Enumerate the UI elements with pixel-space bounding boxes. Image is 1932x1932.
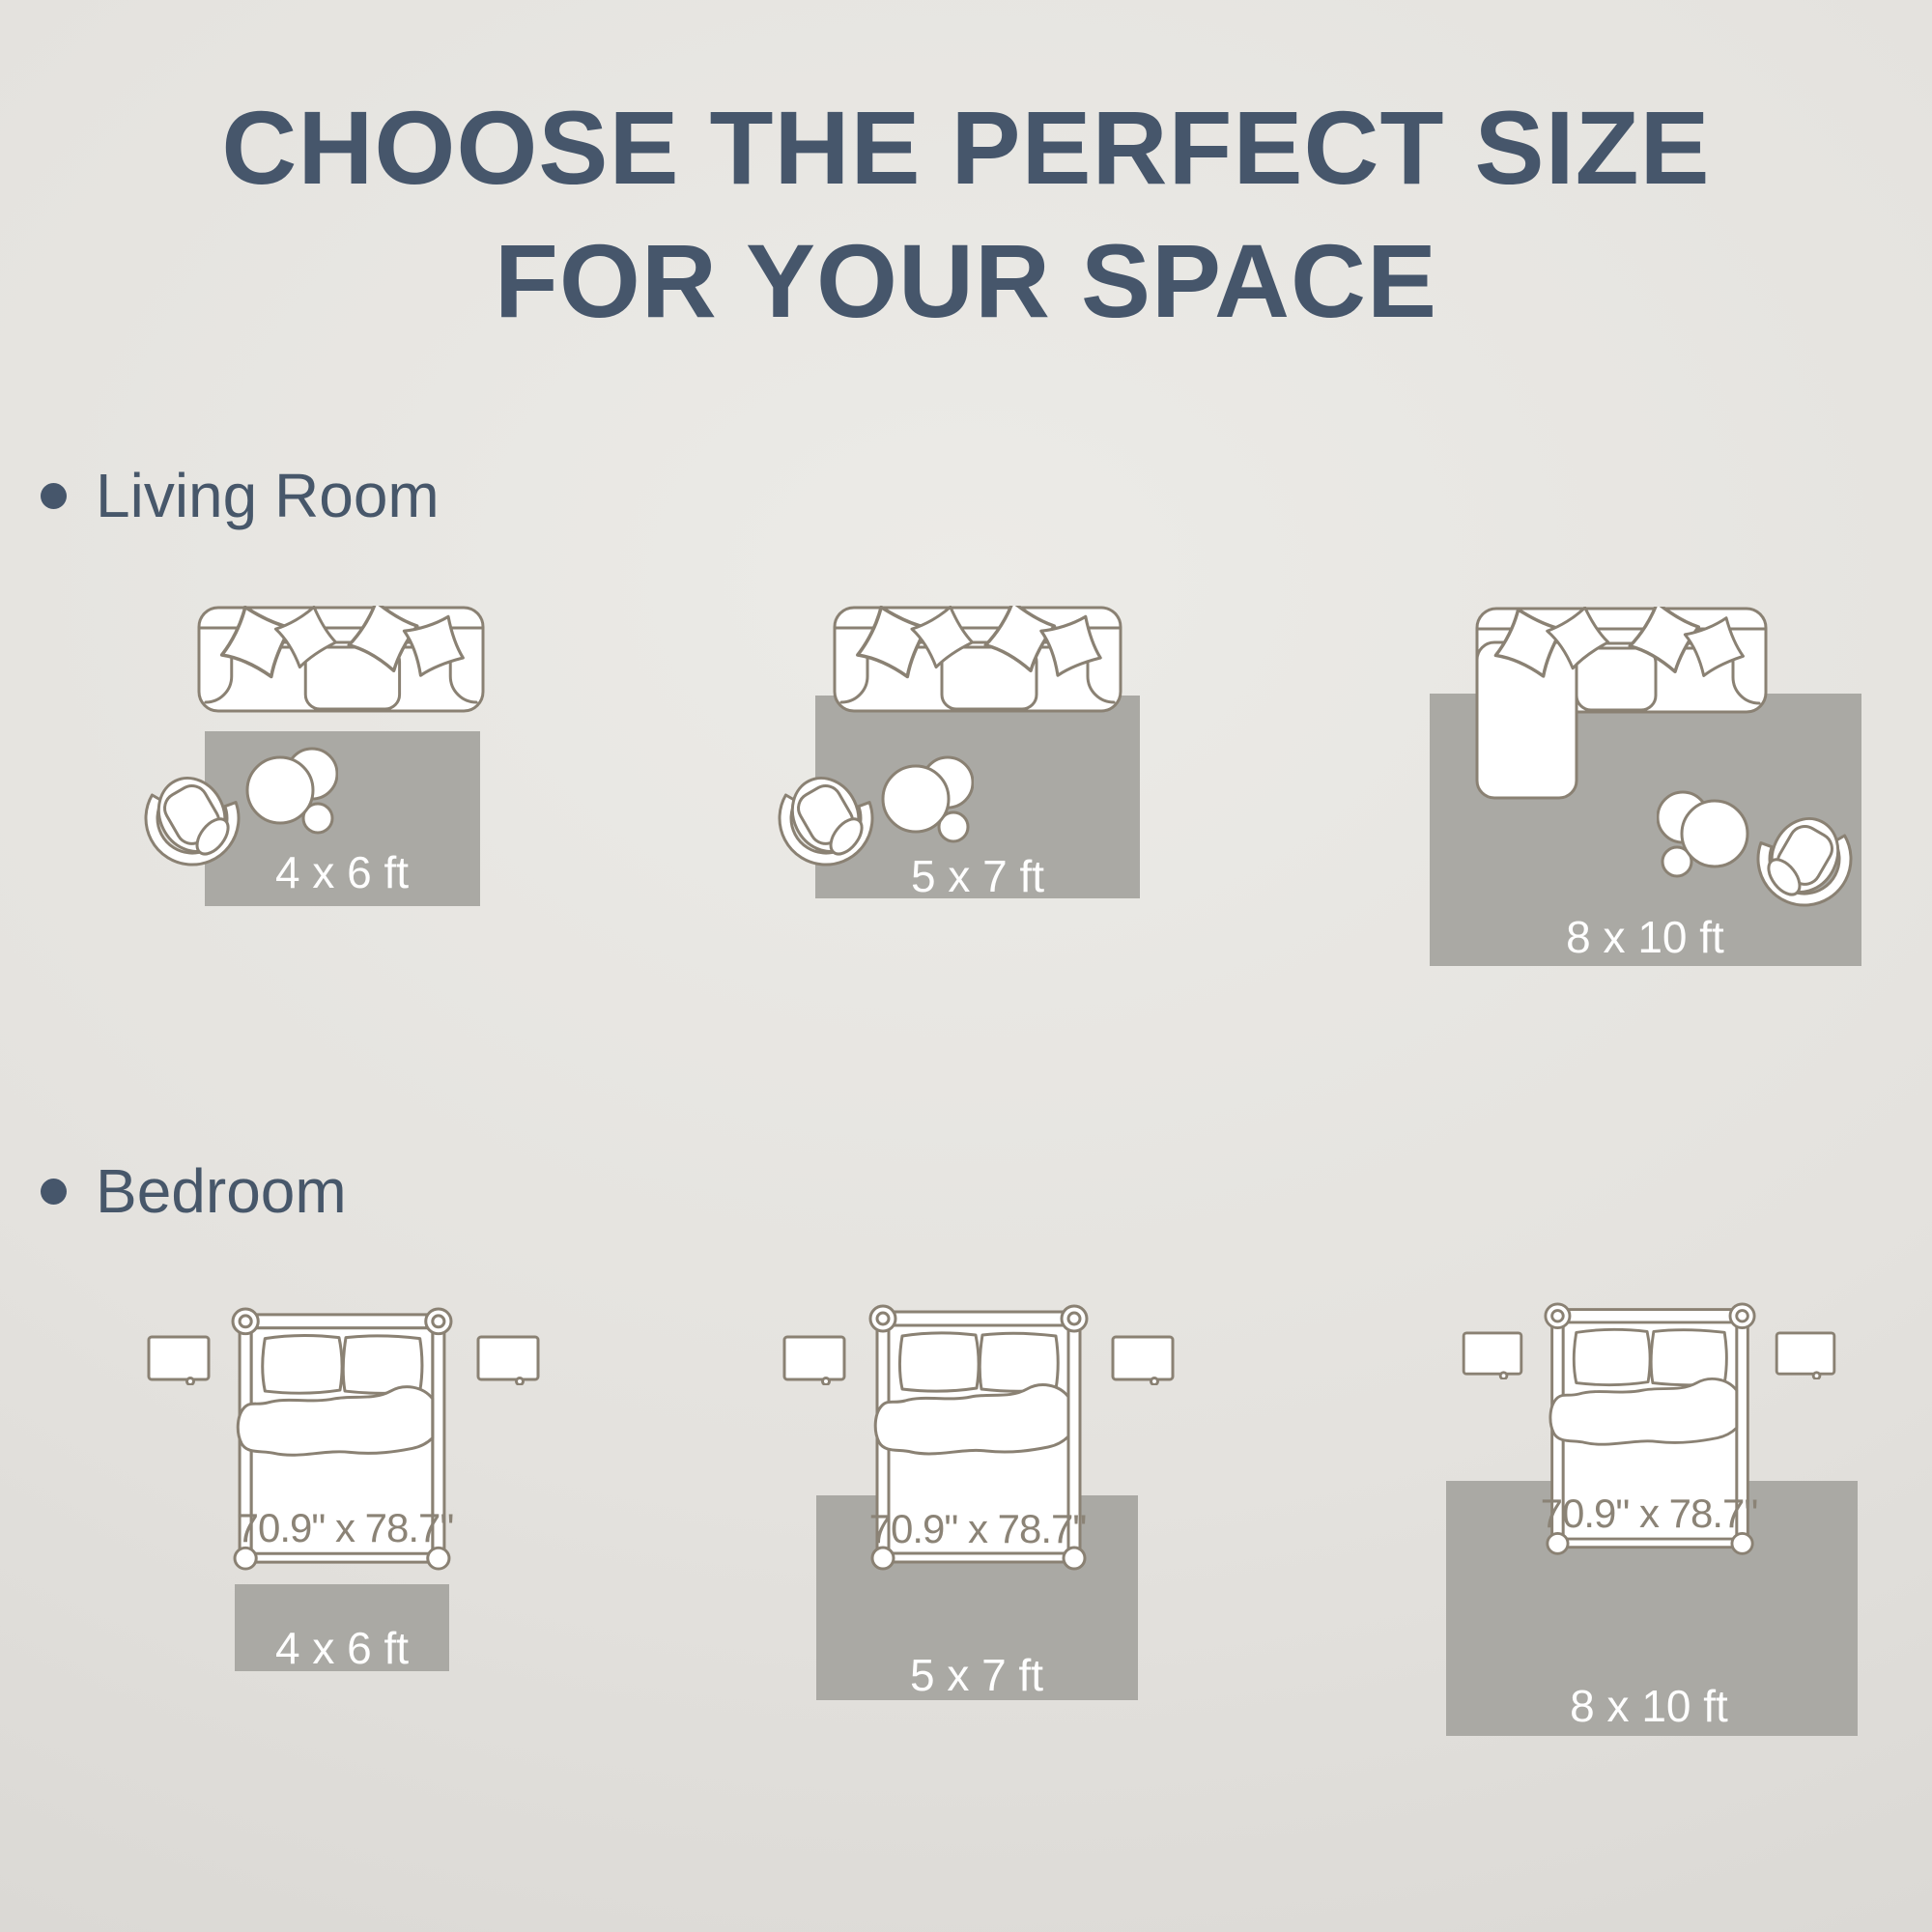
- nightstand-left-icon: [784, 1337, 844, 1385]
- page-title-line-2: FOR YOUR SPACE: [0, 214, 1932, 348]
- living-room-4x6-layout: [87, 580, 551, 985]
- nightstand-right-icon: [1776, 1333, 1834, 1379]
- rug-size-label: 5 x 7 ft: [911, 850, 1044, 902]
- nightstand-left-icon: [149, 1337, 209, 1385]
- bullet-icon: [41, 1179, 67, 1205]
- bed-size-label: 70.9" x 78.7": [869, 1506, 1087, 1552]
- rug-size-label: 5 x 7 ft: [910, 1649, 1043, 1701]
- sofa-icon: [199, 594, 483, 711]
- rug-size-label: 8 x 10 ft: [1566, 911, 1724, 963]
- nightstand-right-icon: [478, 1337, 538, 1385]
- section-living-room-label: Living Room: [96, 460, 440, 531]
- page-title-line-1: CHOOSE THE PERFECT SIZE: [0, 81, 1932, 214]
- bullet-icon: [41, 483, 67, 509]
- section-bedroom-label: Bedroom: [96, 1155, 347, 1227]
- rug-size-label: 8 x 10 ft: [1570, 1680, 1728, 1732]
- section-bedroom: Bedroom: [41, 1155, 347, 1227]
- bed-size-label: 70.9" x 78.7": [1541, 1491, 1758, 1537]
- rug-size-label: 4 x 6 ft: [275, 846, 409, 898]
- page-title: CHOOSE THE PERFECT SIZE FOR YOUR SPACE: [0, 81, 1932, 348]
- living-room-5x7-layout: [724, 580, 1188, 985]
- rug-size-label: 4 x 6 ft: [275, 1622, 409, 1674]
- nightstand-left-icon: [1463, 1333, 1521, 1379]
- nightstand-right-icon: [1113, 1337, 1173, 1385]
- section-living-room: Living Room: [41, 460, 440, 531]
- sofa-icon: [835, 594, 1121, 711]
- bed-size-label: 70.9" x 78.7": [237, 1505, 454, 1551]
- rug-size-guide-infographic: CHOOSE THE PERFECT SIZE FOR YOUR SPACE L…: [0, 0, 1932, 1932]
